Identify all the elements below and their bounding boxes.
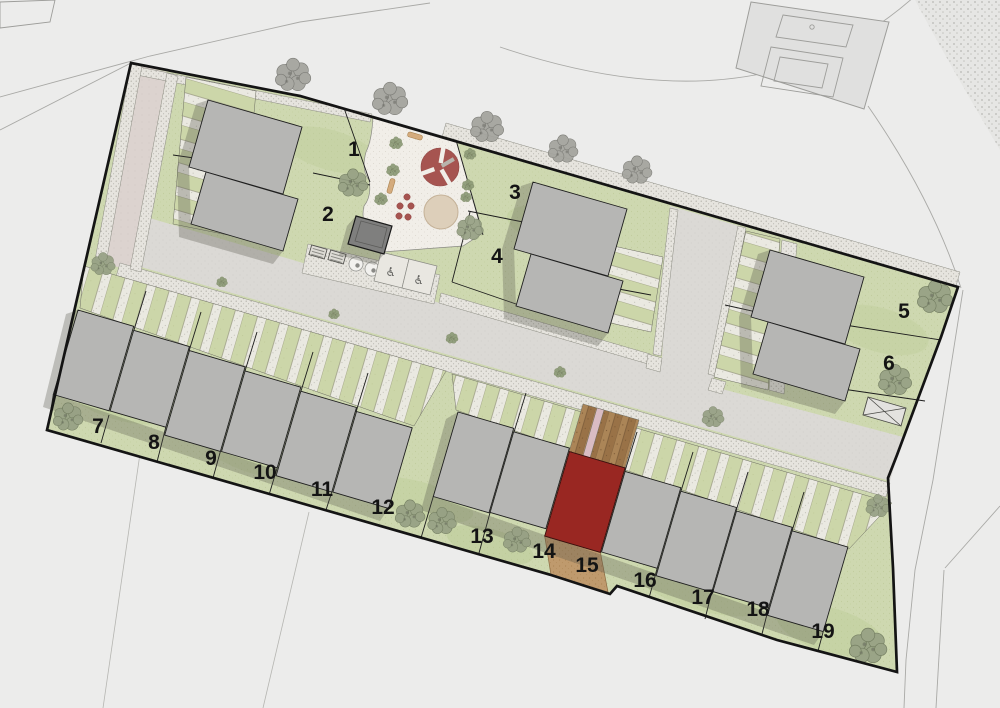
plot-label-3[interactable]: 3 xyxy=(509,181,521,204)
site-plan-canvas: ♿ ♿ xyxy=(0,0,1000,708)
plot-label-7[interactable]: 7 xyxy=(92,415,104,438)
plot-label-15[interactable]: 15 xyxy=(575,554,599,577)
plot-label-13[interactable]: 13 xyxy=(470,525,493,548)
site-plan: ♿ ♿ xyxy=(0,0,1000,708)
plot-label-17[interactable]: 17 xyxy=(691,586,714,609)
plot-label-8[interactable]: 8 xyxy=(148,431,160,454)
plot-label-18[interactable]: 18 xyxy=(746,598,770,621)
bollard-table-dot xyxy=(371,268,375,272)
plot-label-4[interactable]: 4 xyxy=(491,245,503,268)
plot-label-11[interactable]: 11 xyxy=(311,478,334,501)
plot-label-1[interactable]: 1 xyxy=(348,138,360,161)
sand-pit xyxy=(424,195,458,229)
plot-label-12[interactable]: 12 xyxy=(371,496,394,519)
plot-label-6[interactable]: 6 xyxy=(883,352,895,375)
carousel-disc xyxy=(421,148,459,186)
plot-label-19[interactable]: 19 xyxy=(811,620,834,643)
plot-label-14[interactable]: 14 xyxy=(532,540,556,563)
plot-label-5[interactable]: 5 xyxy=(898,300,910,323)
plot-label-10[interactable]: 10 xyxy=(253,461,276,484)
plot-label-2[interactable]: 2 xyxy=(322,203,334,226)
plot-label-9[interactable]: 9 xyxy=(205,447,217,470)
plot-label-16[interactable]: 16 xyxy=(633,569,656,592)
bollard-table-dot xyxy=(355,263,359,267)
